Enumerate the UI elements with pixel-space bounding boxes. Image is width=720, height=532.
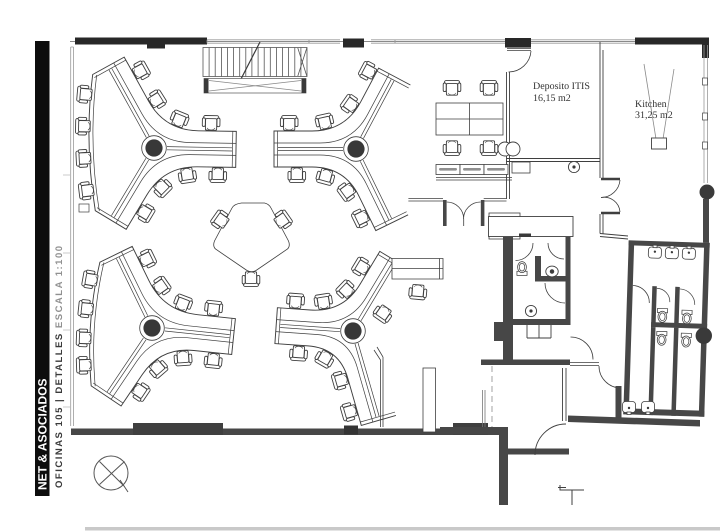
svg-text:NET & ASOCIADOS: NET & ASOCIADOS xyxy=(36,378,50,490)
svg-text:Kitchen: Kitchen xyxy=(635,99,667,110)
svg-text:Deposito ITIS: Deposito ITIS xyxy=(533,81,590,92)
svg-text:16,15 m2: 16,15 m2 xyxy=(533,93,571,104)
svg-text:OFICINAS 105 | DETALLES ESCALA: OFICINAS 105 | DETALLES ESCALA 1:100 xyxy=(54,244,65,488)
svg-text:31,25 m2: 31,25 m2 xyxy=(635,110,673,121)
